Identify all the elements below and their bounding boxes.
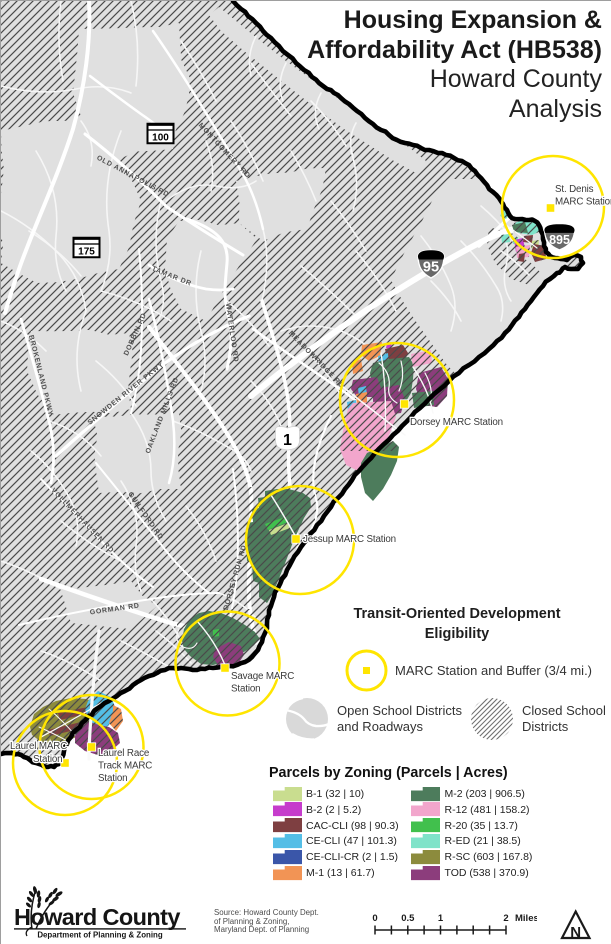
svg-text:Miles: Miles: [515, 913, 537, 924]
svg-text:Savage MARC: Savage MARC: [231, 671, 294, 682]
svg-text:1: 1: [438, 913, 444, 924]
svg-text:Open School Districts: Open School Districts: [337, 703, 462, 718]
svg-text:0.5: 0.5: [401, 913, 415, 924]
svg-text:MARC Station: MARC Station: [555, 197, 611, 208]
svg-text:100: 100: [152, 132, 169, 143]
svg-text:and Roadways: and Roadways: [337, 719, 423, 734]
svg-text:Station: Station: [231, 684, 260, 695]
svg-text:175: 175: [78, 246, 95, 257]
svg-text:Track MARC: Track MARC: [98, 761, 152, 772]
svg-text:95: 95: [423, 259, 439, 275]
svg-text:Department of Planning & Zonin: Department of Planning & Zoning: [37, 931, 163, 940]
svg-text:N: N: [570, 924, 581, 941]
svg-text:Dorsey MARC Station: Dorsey MARC Station: [410, 417, 503, 428]
svg-text:Howard County: Howard County: [14, 904, 180, 930]
svg-text:Laurel Race: Laurel Race: [98, 748, 150, 759]
svg-text:St. Denis: St. Denis: [555, 184, 594, 195]
svg-text:Closed School: Closed School: [522, 703, 606, 718]
svg-text:1: 1: [283, 432, 292, 449]
svg-text:MARC Station and Buffer (3/4 m: MARC Station and Buffer (3/4 mi.): [395, 663, 592, 678]
svg-text:Laurel MARC: Laurel MARC: [10, 741, 67, 752]
svg-text:0: 0: [372, 913, 377, 924]
svg-text:Districts: Districts: [522, 719, 569, 734]
svg-text:2: 2: [503, 913, 508, 924]
svg-text:Station: Station: [33, 754, 62, 765]
svg-text:Jessup MARC Station: Jessup MARC Station: [303, 534, 396, 545]
svg-text:Station: Station: [98, 773, 127, 784]
svg-text:895: 895: [549, 233, 570, 247]
